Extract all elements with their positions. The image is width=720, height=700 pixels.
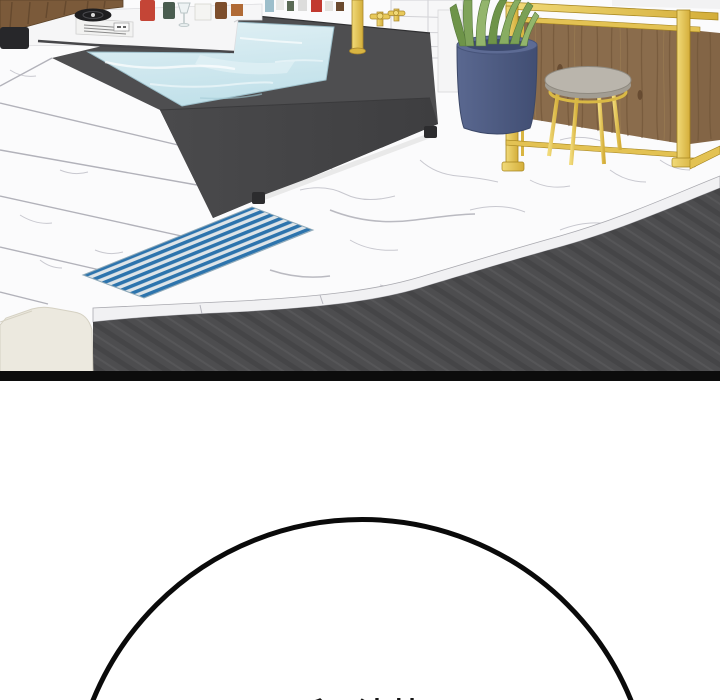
potted-plant bbox=[450, 0, 539, 134]
panel-border bbox=[0, 371, 720, 381]
white-carton bbox=[195, 4, 211, 20]
speech-bubble bbox=[69, 517, 655, 700]
black-speaker-box bbox=[0, 27, 29, 49]
red-bottle bbox=[140, 0, 155, 21]
comic-page: 听不清楚 bbox=[0, 0, 720, 700]
amber-jar bbox=[231, 4, 243, 16]
bar-leg bbox=[677, 10, 690, 166]
speech-bubble-text: 听不清楚 bbox=[294, 689, 422, 700]
stool-seat bbox=[545, 67, 631, 94]
brown-bottle bbox=[215, 2, 227, 19]
scene-illustration bbox=[0, 0, 720, 381]
green-bottle bbox=[163, 2, 175, 19]
plant-pot bbox=[457, 46, 537, 134]
lounge-couch bbox=[0, 307, 93, 376]
